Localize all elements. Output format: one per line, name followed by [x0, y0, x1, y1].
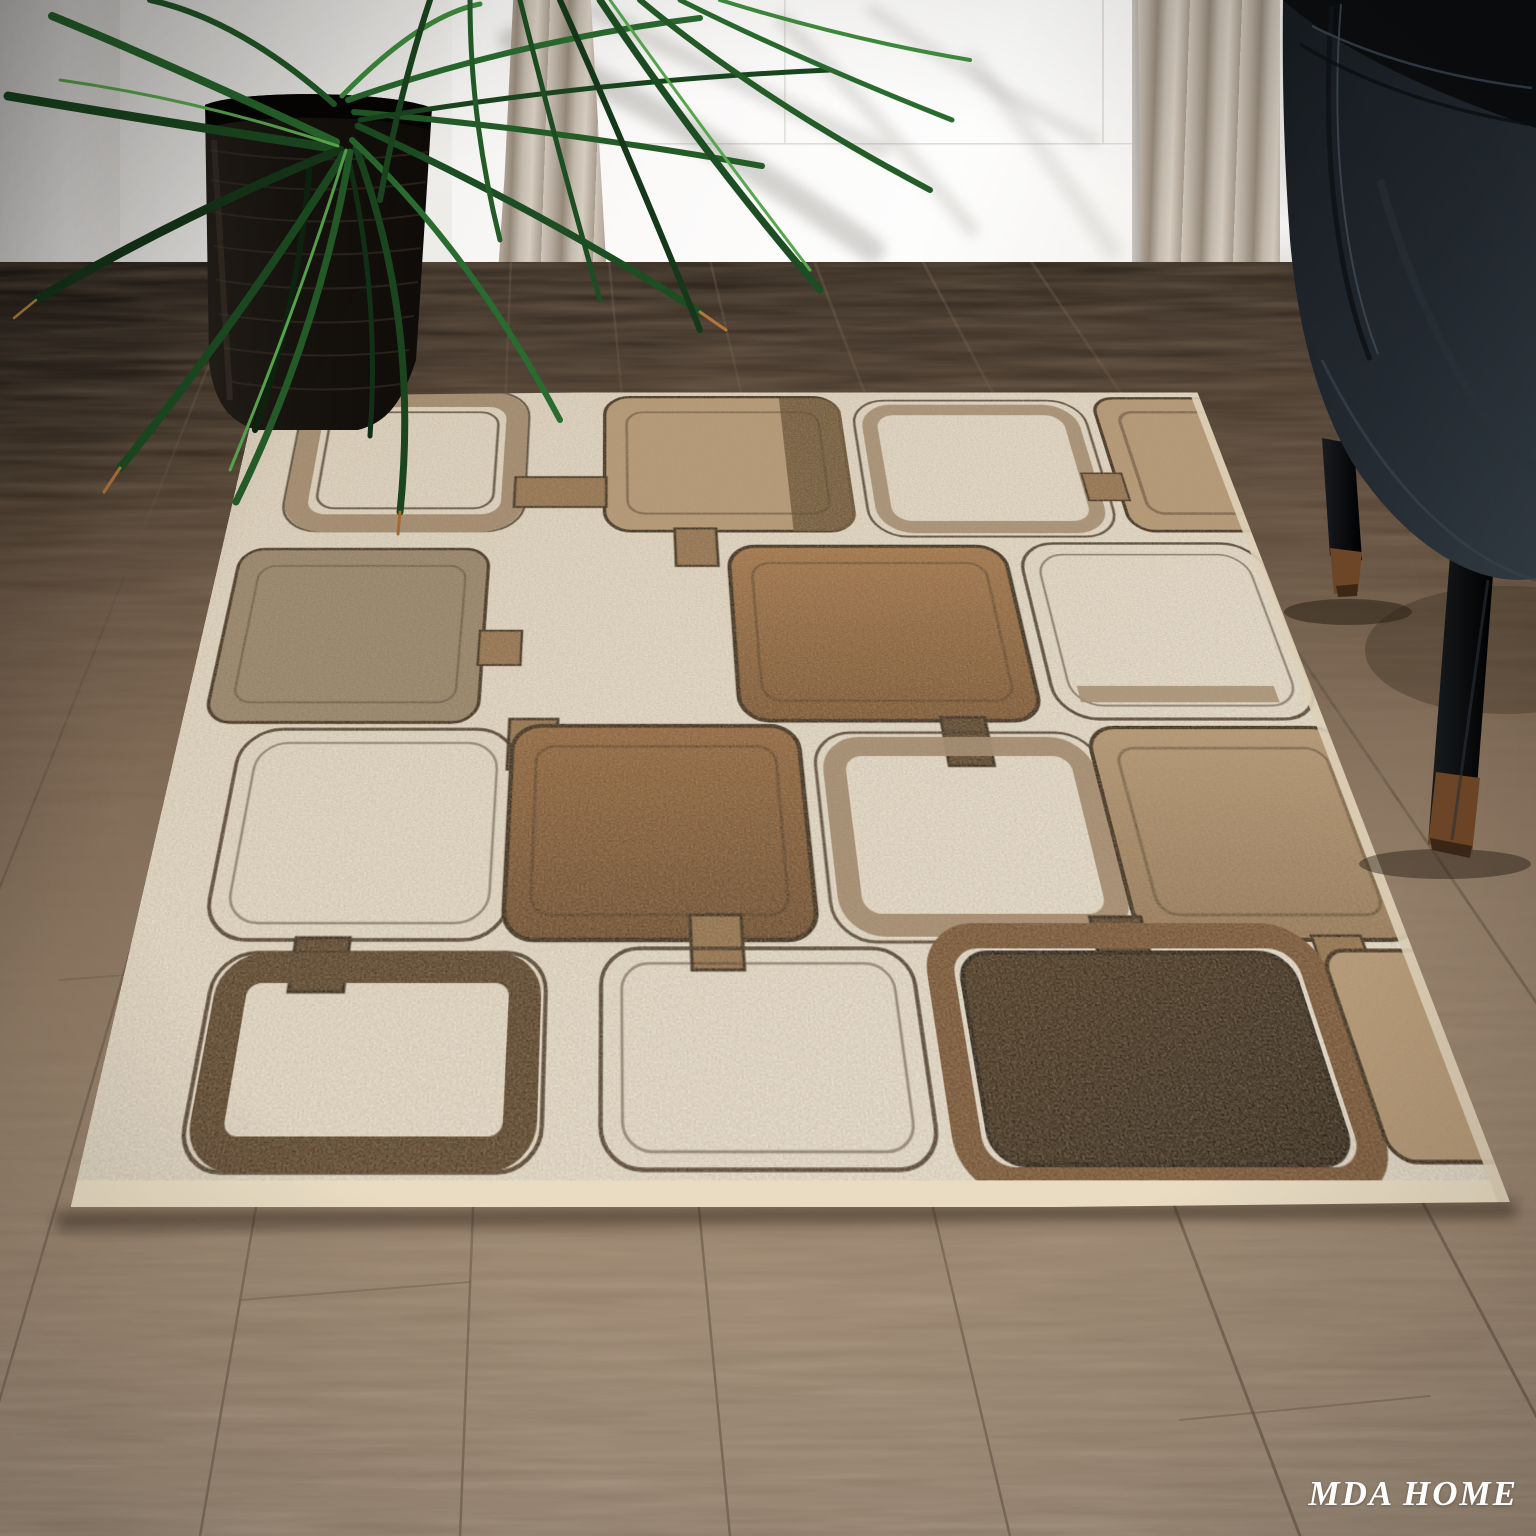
chair-body	[1283, 0, 1536, 580]
dry-leaf-tip	[398, 512, 400, 534]
potted-palm-plant	[0, 0, 1000, 560]
palm-leaves	[8, 0, 970, 534]
palm-leaf	[150, 0, 334, 104]
palm-leaf	[470, 0, 500, 240]
dry-leaf-tip	[700, 312, 726, 330]
rug-binding-edge	[71, 1180, 1515, 1207]
room-photo: MDA HOME	[0, 0, 1536, 1536]
dry-leaf-tip	[104, 468, 120, 492]
brand-watermark: MDA HOME	[1308, 1474, 1518, 1514]
palm-leaf	[348, 18, 700, 100]
leg-shadow	[1359, 849, 1531, 879]
palm-leaf-highlight	[610, 0, 810, 270]
leather-armchair	[1100, 0, 1536, 900]
palm-leaf	[520, 0, 600, 300]
palm-leaf	[720, 0, 970, 60]
dry-leaf-tip	[14, 300, 36, 318]
